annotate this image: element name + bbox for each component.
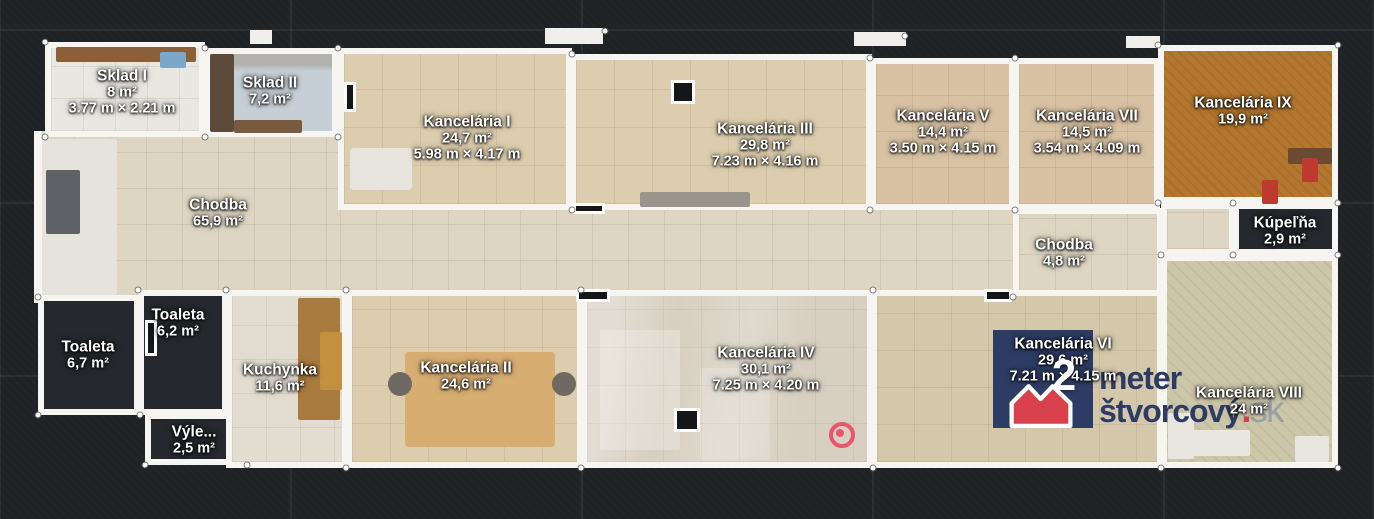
furniture-item: [160, 52, 186, 68]
room-area: 4,8 m²: [1035, 254, 1093, 270]
wall-corner-dot: [203, 46, 208, 51]
door-marker: [573, 203, 605, 214]
wall-corner-dot: [136, 288, 141, 293]
room-label-kancelaria-1: Kancelária I24,7 m²5.98 m × 4.17 m: [414, 114, 521, 163]
wall-segment: [34, 131, 42, 303]
room-name: Kancelária IX: [1194, 95, 1291, 112]
furniture-item: [46, 170, 80, 234]
room-area: 14,5 m²: [1034, 125, 1141, 141]
wall-corner-dot: [336, 46, 341, 51]
room-name: Kancelária I: [414, 114, 521, 131]
floorplan-canvas: Chodba65,9 m²Sklad I8 m²3.77 m × 2.21 mS…: [0, 0, 1374, 519]
room-passage: [1161, 203, 1235, 255]
room-area: 30,1 m²: [713, 362, 820, 378]
room-dims: 7.23 m × 4.16 m: [712, 154, 819, 170]
room-area: 7,2 m²: [243, 92, 297, 108]
wall-corner-dot: [344, 466, 349, 471]
wall-corner-dot: [1159, 253, 1164, 258]
wall-stub: [854, 32, 906, 46]
wall-corner-dot: [138, 413, 143, 418]
room-label-kuchynka: Kuchynka11,6 m²: [243, 362, 317, 395]
room-name: Toaleta: [151, 307, 204, 324]
furniture-item: [640, 192, 750, 207]
room-dims: 5.98 m × 4.17 m: [414, 147, 521, 163]
furniture-item: [1295, 436, 1329, 462]
room-label-kancelaria-9: Kancelária IX19,9 m²: [1194, 95, 1291, 128]
room-area: 29,8 m²: [712, 138, 819, 154]
room-label-sklad-2: Sklad II7,2 m²: [243, 75, 297, 108]
room-dims: 3.77 m × 2.21 m: [69, 101, 176, 117]
room-label-toaleta-1: Toaleta6,7 m²: [61, 339, 114, 372]
wall-corner-dot: [1011, 295, 1016, 300]
door-marker: [984, 289, 1012, 302]
room-name: Kancelária VIII: [1196, 385, 1302, 402]
scan-point-marker[interactable]: [829, 422, 855, 448]
wall-corner-dot: [1013, 56, 1018, 61]
room-dims: 3.54 m × 4.09 m: [1034, 141, 1141, 157]
room-label-kupelna: Kúpeľňa2,9 m²: [1254, 215, 1317, 248]
wall-corner-dot: [570, 208, 575, 213]
wall-corner-dot: [903, 34, 908, 39]
wall-corner-dot: [1336, 466, 1341, 471]
room-name: Chodba: [1035, 237, 1093, 254]
wall-corner-dot: [1156, 201, 1161, 206]
room-label-kancelaria-2: Kancelária II24,6 m²: [420, 360, 511, 393]
room-area: 2,5 m²: [172, 441, 217, 457]
furniture-item: [1262, 180, 1278, 204]
room-chodba-main-b: [340, 204, 1013, 297]
room-dims: 7.25 m × 4.20 m: [713, 378, 820, 394]
wall-corner-dot: [1231, 253, 1236, 258]
room-area: 24,6 m²: [420, 377, 511, 393]
room-name: Kancelária VI: [1010, 336, 1117, 353]
room-area: 2,9 m²: [1254, 232, 1317, 248]
wall-corner-dot: [43, 40, 48, 45]
wall-corner-dot: [43, 135, 48, 140]
room-label-kancelaria-4: Kancelária IV30,1 m²7.25 m × 4.20 m: [713, 345, 820, 394]
door-marker: [344, 82, 356, 112]
furniture-item: [320, 332, 342, 390]
furniture-item: [1302, 158, 1318, 182]
room-area: 6,7 m²: [61, 356, 114, 372]
room-area: 24 m²: [1196, 402, 1302, 418]
room-label-chodba-small: Chodba4,8 m²: [1035, 237, 1093, 270]
wall-corner-dot: [1156, 43, 1161, 48]
room-label-kancelaria-7: Kancelária VII14,5 m²3.54 m × 4.09 m: [1034, 108, 1141, 157]
room-name: Toaleta: [61, 339, 114, 356]
room-label-chodba-main-a: Chodba65,9 m²: [189, 197, 247, 230]
room-label-kancelaria-8: Kancelária VIII24 m²: [1196, 385, 1302, 418]
room-label-kancelaria-5: Kancelária V14,4 m²3.50 m × 4.15 m: [890, 108, 997, 157]
room-label-vylevka: Výle...2,5 m²: [172, 424, 217, 457]
wall-stub: [250, 30, 272, 44]
room-label-sklad-1: Sklad I8 m²3.77 m × 2.21 m: [69, 68, 176, 117]
room-area: 19,9 m²: [1194, 112, 1291, 128]
wall-corner-dot: [868, 56, 873, 61]
room-name: Sklad I: [69, 68, 176, 85]
room-name: Chodba: [189, 197, 247, 214]
room-dims: 3.50 m × 4.15 m: [890, 141, 997, 157]
wall-corner-dot: [570, 52, 575, 57]
wall-corner-dot: [871, 288, 876, 293]
wall-corner-dot: [579, 288, 584, 293]
room-name: Kancelária II: [420, 360, 511, 377]
wall-corner-dot: [336, 135, 341, 140]
wall-corner-dot: [579, 466, 584, 471]
wall-corner-dot: [1336, 253, 1341, 258]
room-area: 6,2 m²: [151, 324, 204, 340]
room-name: Kuchynka: [243, 362, 317, 379]
room-area: 65,9 m²: [189, 214, 247, 230]
wall-corner-dot: [1336, 43, 1341, 48]
furniture-item: [1190, 430, 1250, 456]
wall-stub: [545, 28, 603, 44]
wall-corner-dot: [1336, 201, 1341, 206]
furniture-item: [388, 372, 412, 396]
wall-corner-dot: [344, 288, 349, 293]
wall-corner-dot: [203, 135, 208, 140]
wall-corner-dot: [1013, 208, 1018, 213]
room-area: 11,6 m²: [243, 379, 317, 395]
furniture-item: [234, 120, 302, 133]
wall-corner-dot: [871, 466, 876, 471]
room-name: Kancelária III: [712, 121, 819, 138]
wall-corner-dot: [245, 463, 250, 468]
room-area: 14,4 m²: [890, 125, 997, 141]
room-name: Kancelária VII: [1034, 108, 1141, 125]
room-name: Kancelária IV: [713, 345, 820, 362]
door-marker: [671, 80, 695, 104]
room-label-kancelaria-3: Kancelária III29,8 m²7.23 m × 4.16 m: [712, 121, 819, 170]
room-name: Výle...: [172, 424, 217, 441]
room-label-toaleta-2: Toaleta6,2 m²: [151, 307, 204, 340]
room-area: 24,7 m²: [414, 131, 521, 147]
furniture-item: [210, 54, 234, 132]
wall-corner-dot: [1159, 466, 1164, 471]
furniture-item: [600, 330, 680, 450]
wall-corner-dot: [36, 413, 41, 418]
room-name: Sklad II: [243, 75, 297, 92]
wall-corner-dot: [868, 208, 873, 213]
wall-corner-dot: [1231, 201, 1236, 206]
watermark-house-icon: [1006, 382, 1076, 428]
room-name: Kancelária V: [890, 108, 997, 125]
furniture-item: [350, 148, 412, 190]
room-area: 8 m²: [69, 85, 176, 101]
wall-corner-dot: [603, 29, 608, 34]
wall-corner-dot: [224, 288, 229, 293]
wall-corner-dot: [143, 463, 148, 468]
wall-corner-dot: [36, 295, 41, 300]
furniture-item: [552, 372, 576, 396]
room-name: Kúpeľňa: [1254, 215, 1317, 232]
door-marker: [674, 408, 700, 432]
